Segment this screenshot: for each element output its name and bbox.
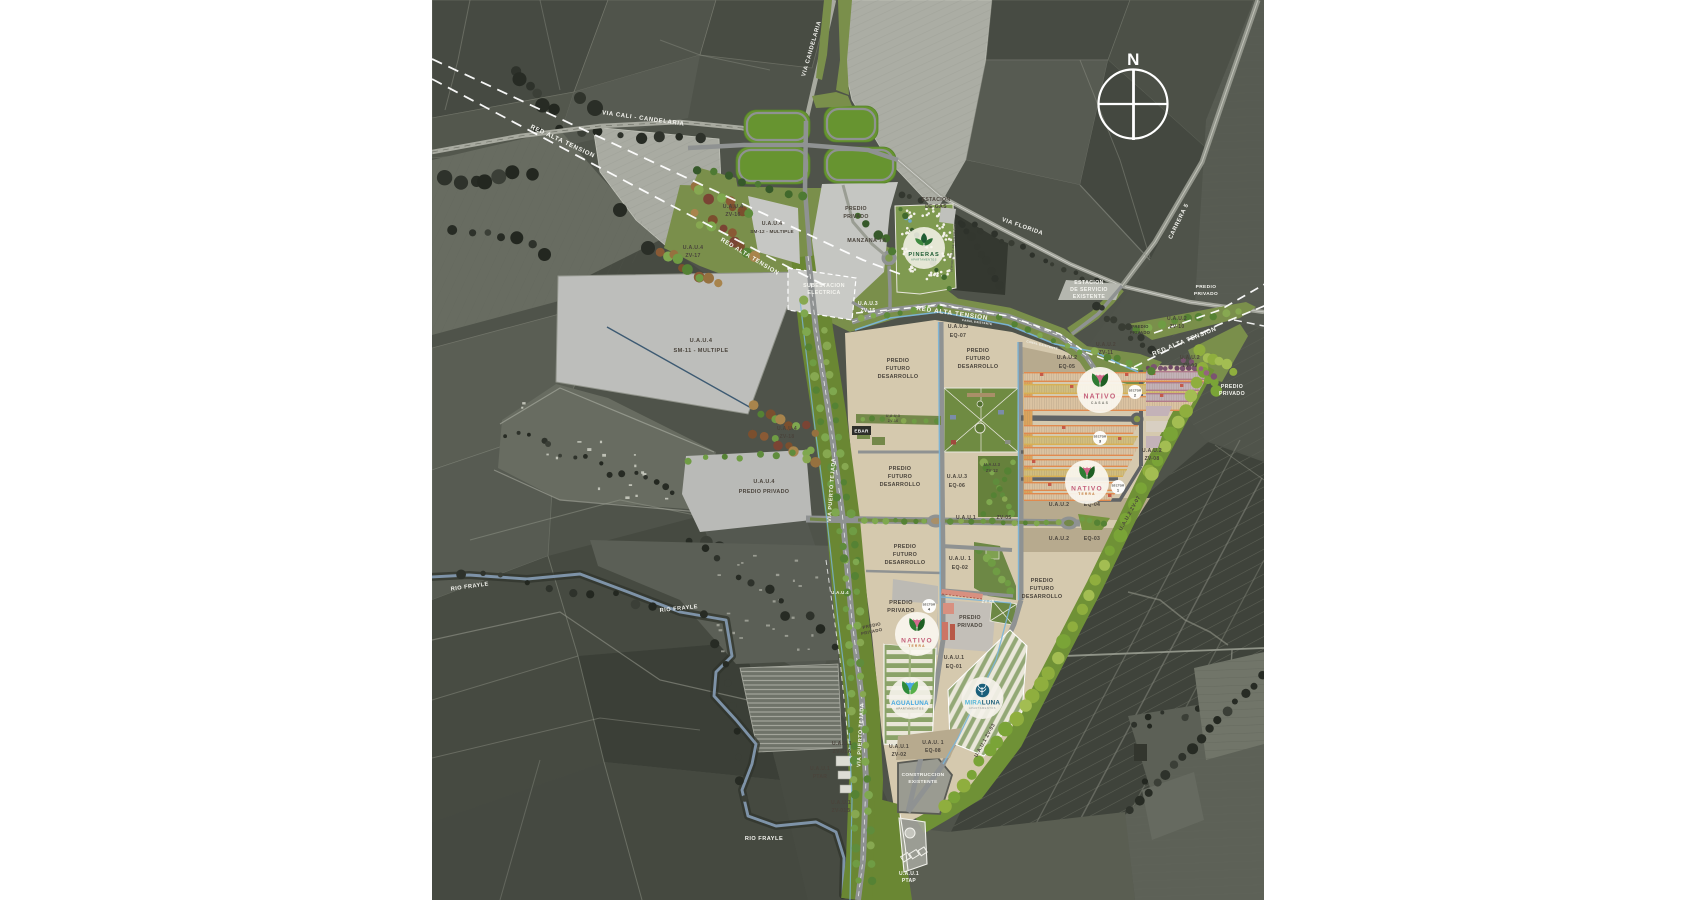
svg-text:PREDIO: PREDIO bbox=[894, 544, 916, 550]
svg-text:U.A.U.2: U.A.U.2 bbox=[1049, 536, 1070, 542]
svg-text:U.A.U.1: U.A.U.1 bbox=[832, 741, 852, 747]
svg-text:ZV-15: ZV-15 bbox=[861, 308, 876, 314]
svg-text:ZV-08: ZV-08 bbox=[1145, 456, 1160, 462]
svg-text:ZV-17: ZV-17 bbox=[685, 253, 700, 259]
svg-text:APARTAMENTOS: APARTAMENTOS bbox=[896, 707, 924, 711]
svg-text:U.A.U.3: U.A.U.3 bbox=[948, 324, 969, 330]
svg-text:U.A.U.4: U.A.U.4 bbox=[753, 479, 774, 485]
svg-text:EQ-05: EQ-05 bbox=[1059, 364, 1076, 370]
svg-text:DESARROLLO: DESARROLLO bbox=[885, 560, 926, 566]
svg-text:PRIVADO: PRIVADO bbox=[1194, 291, 1218, 297]
svg-text:ZV-16: ZV-16 bbox=[725, 212, 740, 218]
svg-text:PREDIO: PREDIO bbox=[967, 348, 989, 354]
svg-text:PINERAS: PINERAS bbox=[908, 252, 939, 258]
svg-text:EQ-01: EQ-01 bbox=[946, 664, 963, 670]
svg-text:AGUALUNA: AGUALUNA bbox=[891, 700, 929, 707]
svg-text:PREDIO: PREDIO bbox=[1131, 324, 1149, 329]
svg-text:CASAS: CASAS bbox=[1091, 401, 1109, 405]
svg-text:U.A.U.2: U.A.U.2 bbox=[1142, 448, 1162, 454]
svg-text:SM-12 - MULTIPLE: SM-12 - MULTIPLE bbox=[750, 229, 793, 234]
svg-text:U.A.U.3: U.A.U.3 bbox=[984, 462, 1001, 467]
svg-text:EQ-03: EQ-03 bbox=[1084, 536, 1101, 542]
svg-text:NATIVO: NATIVO bbox=[1083, 394, 1116, 401]
svg-text:EQ-08: EQ-08 bbox=[925, 748, 941, 754]
svg-text:EXISTENTE: EXISTENTE bbox=[908, 779, 938, 785]
svg-text:MIRALUNA: MIRALUNA bbox=[965, 700, 1000, 707]
svg-text:ZV-01B: ZV-01B bbox=[832, 808, 851, 814]
svg-text:PREDIO: PREDIO bbox=[889, 466, 911, 472]
svg-text:SM-11 - MULTIPLE: SM-11 - MULTIPLE bbox=[673, 348, 728, 354]
svg-text:PREDIO: PREDIO bbox=[889, 600, 913, 606]
svg-text:ESTACION: ESTACION bbox=[922, 197, 951, 203]
svg-text:ZV-11: ZV-11 bbox=[1099, 350, 1114, 356]
svg-text:PRIVADO: PRIVADO bbox=[1130, 330, 1151, 335]
svg-text:PREDIO PRIVADO: PREDIO PRIVADO bbox=[739, 489, 790, 495]
svg-text:U.A.U.1: U.A.U.1 bbox=[956, 515, 976, 521]
svg-text:DE SERVICIO: DE SERVICIO bbox=[1070, 287, 1108, 293]
svg-text:PREDIO: PREDIO bbox=[1221, 384, 1243, 390]
svg-text:DESARROLLO: DESARROLLO bbox=[958, 364, 999, 370]
svg-text:APARTAMENTOS: APARTAMENTOS bbox=[969, 706, 996, 710]
svg-text:DESARROLLO: DESARROLLO bbox=[1022, 594, 1063, 600]
svg-text:FUTURO: FUTURO bbox=[1030, 586, 1054, 592]
svg-text:ESTACION: ESTACION bbox=[1074, 280, 1104, 286]
svg-text:U.A.U.3: U.A.U.3 bbox=[886, 414, 900, 418]
svg-text:U.A.U.4: U.A.U.4 bbox=[831, 590, 849, 595]
svg-text:U.A.U.4: U.A.U.4 bbox=[690, 338, 713, 344]
svg-text:PTAP: PTAP bbox=[902, 878, 917, 884]
svg-text:U.A.U.2: U.A.U.2 bbox=[1057, 355, 1078, 361]
svg-text:ZV-09: ZV-09 bbox=[1183, 363, 1198, 369]
svg-text:U.A.U.4: U.A.U.4 bbox=[762, 221, 783, 227]
svg-text:U.A.U.1: U.A.U.1 bbox=[889, 744, 909, 750]
svg-text:ZV-05: ZV-05 bbox=[997, 515, 1012, 521]
svg-text:U.A.U.4: U.A.U.4 bbox=[777, 426, 797, 432]
svg-text:PREDIO: PREDIO bbox=[1031, 578, 1053, 584]
svg-text:U.A.U.1: U.A.U.1 bbox=[831, 800, 851, 806]
svg-text:ZV-02: ZV-02 bbox=[892, 752, 907, 758]
svg-text:PRIVADO: PRIVADO bbox=[843, 214, 868, 220]
svg-text:U.A.U.2: U.A.U.2 bbox=[1180, 355, 1200, 361]
svg-text:FUTURO: FUTURO bbox=[893, 552, 917, 558]
svg-text:SUBESTACION: SUBESTACION bbox=[803, 283, 845, 289]
svg-text:U.A.U.4: U.A.U.4 bbox=[723, 204, 744, 210]
svg-text:PTAR: PTAR bbox=[813, 774, 828, 780]
svg-text:FUTURO: FUTURO bbox=[886, 366, 910, 372]
svg-text:FUTURO: FUTURO bbox=[888, 474, 912, 480]
svg-text:EBAR: EBAR bbox=[854, 429, 869, 434]
svg-text:ELECTRICA: ELECTRICA bbox=[807, 290, 840, 296]
svg-text:U.A.U.3: U.A.U.3 bbox=[858, 301, 878, 307]
svg-text:ZV-16: ZV-16 bbox=[888, 419, 899, 423]
svg-text:N: N bbox=[1127, 50, 1140, 69]
svg-text:U.A.U. 1: U.A.U. 1 bbox=[949, 556, 971, 562]
svg-text:U.A.U.3: U.A.U.3 bbox=[947, 474, 968, 480]
svg-text:DE GAS: DE GAS bbox=[925, 204, 947, 210]
svg-text:MANZANA 7A: MANZANA 7A bbox=[847, 238, 886, 244]
svg-text:APARTAMENTOS: APARTAMENTOS bbox=[911, 259, 937, 262]
svg-text:U.A.U.2: U.A.U.2 bbox=[1167, 316, 1187, 322]
svg-text:CONSTRUCCION: CONSTRUCCION bbox=[902, 772, 945, 778]
svg-text:PRIVADO: PRIVADO bbox=[957, 623, 982, 629]
svg-text:EQ-06: EQ-06 bbox=[949, 483, 966, 489]
svg-text:U.A.U.2: U.A.U.2 bbox=[1049, 502, 1070, 508]
svg-text:DESARROLLO: DESARROLLO bbox=[880, 482, 921, 488]
svg-text:U.A.U.1: U.A.U.1 bbox=[899, 871, 919, 877]
svg-text:PREDIO: PREDIO bbox=[887, 358, 909, 364]
svg-text:EXISTENTE: EXISTENTE bbox=[1073, 294, 1106, 300]
svg-text:U.A.U.2: U.A.U.2 bbox=[1096, 342, 1116, 348]
svg-text:ZV-18: ZV-18 bbox=[780, 434, 795, 440]
svg-text:PRIVADO: PRIVADO bbox=[1219, 391, 1245, 397]
svg-text:U.A.U.1: U.A.U.1 bbox=[944, 655, 965, 661]
svg-text:PREDIO: PREDIO bbox=[845, 206, 867, 212]
svg-text:PREDIO: PREDIO bbox=[959, 615, 981, 621]
svg-text:DESARROLLO: DESARROLLO bbox=[878, 374, 919, 380]
svg-text:ZV-01A: ZV-01A bbox=[833, 749, 852, 755]
svg-text:U.A.U. 1: U.A.U. 1 bbox=[922, 740, 944, 746]
svg-text:RIO FRAYLE: RIO FRAYLE bbox=[745, 836, 783, 842]
svg-text:TERRA: TERRA bbox=[908, 644, 925, 648]
svg-text:ZV-08: ZV-08 bbox=[982, 599, 995, 604]
svg-text:U.A.U.4: U.A.U.4 bbox=[683, 245, 704, 251]
svg-text:U.A.U.1: U.A.U.1 bbox=[810, 766, 830, 772]
svg-text:TERRA: TERRA bbox=[1078, 492, 1095, 496]
svg-text:PREDIO: PREDIO bbox=[1196, 284, 1217, 290]
svg-text:EQ-07: EQ-07 bbox=[950, 333, 967, 339]
svg-text:EQ-02: EQ-02 bbox=[952, 565, 969, 571]
svg-text:ZV-12: ZV-12 bbox=[986, 468, 999, 473]
svg-text:ZV-10: ZV-10 bbox=[1170, 324, 1185, 330]
svg-text:FUTURO: FUTURO bbox=[966, 356, 990, 362]
